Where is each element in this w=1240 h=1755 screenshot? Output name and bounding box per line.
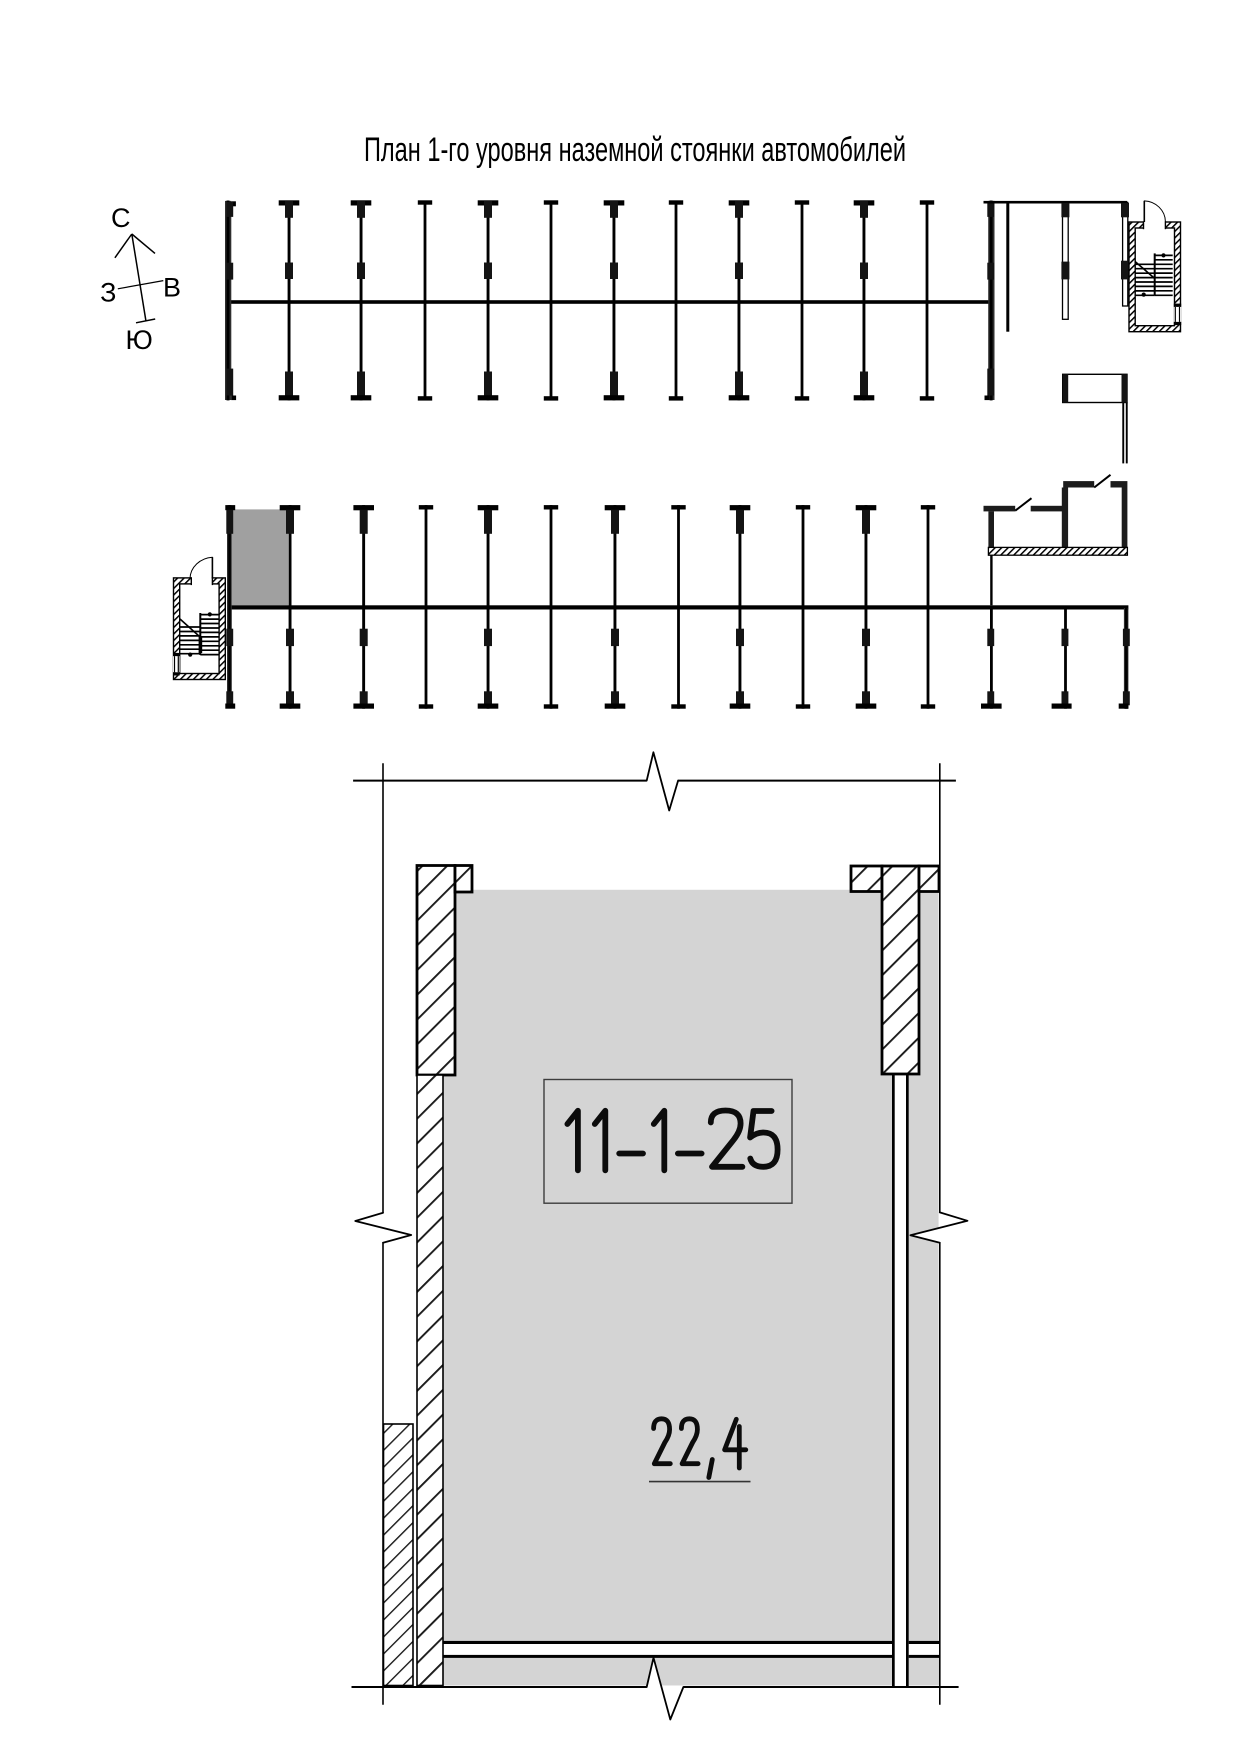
svg-text:З: З — [100, 277, 116, 307]
svg-text:В: В — [163, 273, 181, 303]
svg-text:С: С — [111, 203, 131, 233]
svg-text:Ю: Ю — [125, 325, 152, 355]
svg-text:План 1-го уровня наземной стоя: План 1-го уровня наземной стоянки автомо… — [364, 131, 906, 169]
